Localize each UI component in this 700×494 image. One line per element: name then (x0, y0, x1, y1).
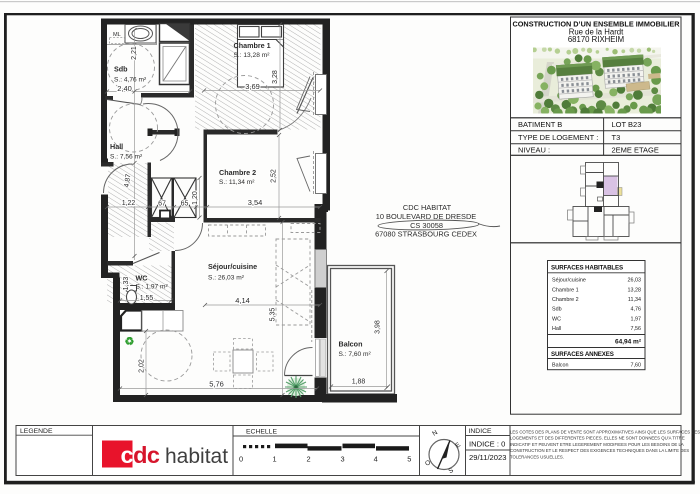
svg-text:Sdb: Sdb (552, 307, 562, 313)
svg-text:5,76: 5,76 (209, 380, 224, 389)
svg-text:3,98: 3,98 (375, 320, 382, 334)
svg-text:Sdb: Sdb (114, 65, 128, 74)
svg-text:67080 STRASBOURG CEDEX: 67080 STRASBOURG CEDEX (375, 230, 477, 239)
svg-text:29/11/2023: 29/11/2023 (469, 453, 506, 462)
svg-text:INDICATIF ET PEUVENT ETRE LEGE: INDICATIF ET PEUVENT ETRE LEGEREMENT MOD… (510, 442, 684, 447)
svg-text:5: 5 (407, 455, 411, 464)
svg-text:S.: 4,76 m²: S.: 4,76 m² (114, 77, 147, 84)
svg-text:Chambre 2: Chambre 2 (219, 168, 256, 177)
svg-text:INDICE : 0: INDICE : 0 (469, 440, 505, 449)
svg-text:S.: 26,03 m²: S.: 26,03 m² (208, 275, 245, 282)
svg-text:11,34: 11,34 (628, 297, 641, 303)
svg-text:NIVEAU :: NIVEAU : (518, 146, 550, 155)
svg-text:7,60: 7,60 (631, 362, 642, 368)
svg-text:Chambre 2: Chambre 2 (552, 297, 579, 303)
svg-text:4,14: 4,14 (235, 296, 250, 305)
svg-text:2,02: 2,02 (139, 359, 146, 373)
svg-text:0: 0 (239, 455, 243, 464)
svg-text:INDICE: INDICE (469, 428, 493, 435)
svg-text:3,54: 3,54 (248, 198, 263, 207)
svg-text:Chambre 1: Chambre 1 (552, 287, 579, 293)
svg-text:S.: 13,28 m²: S.: 13,28 m² (234, 52, 271, 59)
svg-text:LOT B23: LOT B23 (612, 120, 642, 129)
svg-text:1,22: 1,22 (122, 200, 136, 207)
svg-text:LOGEMENTS ET DES DIFFERENTES P: LOGEMENTS ET DES DIFFERENTES PIECES. ELL… (510, 436, 685, 441)
svg-text:1,20: 1,20 (192, 191, 199, 205)
svg-text:S.: 7,56 m²: S.: 7,56 m² (110, 154, 143, 161)
svg-text:64,94 m²: 64,94 m² (615, 339, 642, 346)
svg-text:2,52: 2,52 (271, 169, 278, 183)
svg-text:Séjour/cuisine: Séjour/cuisine (552, 278, 586, 284)
svg-text:5,35: 5,35 (270, 308, 277, 322)
svg-text:2: 2 (307, 455, 311, 464)
svg-text:4,76: 4,76 (631, 307, 642, 313)
svg-text:1,88: 1,88 (352, 379, 366, 386)
svg-text:CDC HABITAT: CDC HABITAT (403, 203, 452, 212)
svg-text:habitat: habitat (165, 445, 228, 468)
svg-text:7,56: 7,56 (631, 326, 642, 332)
svg-text:CONSTRUCTION ET LE RESPECT DES: CONSTRUCTION ET LE RESPECT DES EXIGENCES… (510, 448, 689, 453)
svg-text:♻: ♻ (125, 336, 135, 348)
svg-text:1,55: 1,55 (140, 295, 154, 302)
svg-text:WC: WC (136, 274, 148, 283)
svg-text:26,03: 26,03 (628, 278, 642, 284)
svg-text:10 BOULEVARD DE DRESDE: 10 BOULEVARD DE DRESDE (376, 212, 477, 221)
svg-text:Séjour/cuisine: Séjour/cuisine (208, 262, 257, 271)
svg-text:2,40: 2,40 (117, 84, 132, 93)
svg-text:3,28: 3,28 (272, 70, 279, 84)
svg-text:WC: WC (552, 316, 561, 322)
svg-text:S.: 11,34 m²: S.: 11,34 m² (219, 179, 255, 186)
svg-text:SURFACES HABITABLES: SURFACES HABITABLES (551, 265, 623, 272)
svg-text:Balcon: Balcon (339, 339, 363, 348)
svg-text:BATIMENT B: BATIMENT B (518, 120, 562, 129)
svg-text:4: 4 (374, 455, 378, 464)
svg-text:3,69: 3,69 (245, 82, 260, 91)
svg-text:LES COTES DES PLANS DE VENTE S: LES COTES DES PLANS DE VENTE SONT APPROX… (510, 430, 700, 435)
svg-text:Balcon: Balcon (552, 362, 568, 368)
svg-text:68170 RIXHEIM: 68170 RIXHEIM (568, 35, 624, 44)
svg-text:ECHELLE: ECHELLE (246, 429, 277, 436)
svg-text:1,97: 1,97 (631, 316, 642, 322)
svg-text:LEGENDE: LEGENDE (20, 428, 53, 435)
svg-text:2EME ETAGE: 2EME ETAGE (612, 146, 659, 155)
svg-text:67: 67 (158, 201, 166, 208)
svg-text:SURFACES ANNEXES: SURFACES ANNEXES (551, 351, 614, 358)
svg-text:S.: 1,97 m²: S.: 1,97 m² (136, 284, 169, 291)
svg-text:T3: T3 (612, 133, 621, 142)
svg-text:1,33: 1,33 (123, 277, 130, 291)
svg-text:2,21: 2,21 (131, 46, 138, 60)
svg-text:Chambre 1: Chambre 1 (234, 41, 271, 50)
svg-text:S.: 7,60 m²: S.: 7,60 m² (339, 351, 372, 358)
svg-text:Hall: Hall (110, 142, 123, 151)
svg-text:13,28: 13,28 (628, 287, 642, 293)
svg-text:TOLERANCES USUELLES.: TOLERANCES USUELLES. (510, 454, 564, 459)
svg-text:Hall: Hall (552, 326, 561, 332)
svg-text:3: 3 (340, 455, 344, 464)
svg-text:TYPE DE LOGEMENT :: TYPE DE LOGEMENT : (518, 133, 598, 142)
svg-text:65: 65 (181, 201, 189, 208)
svg-text:1: 1 (273, 455, 277, 464)
